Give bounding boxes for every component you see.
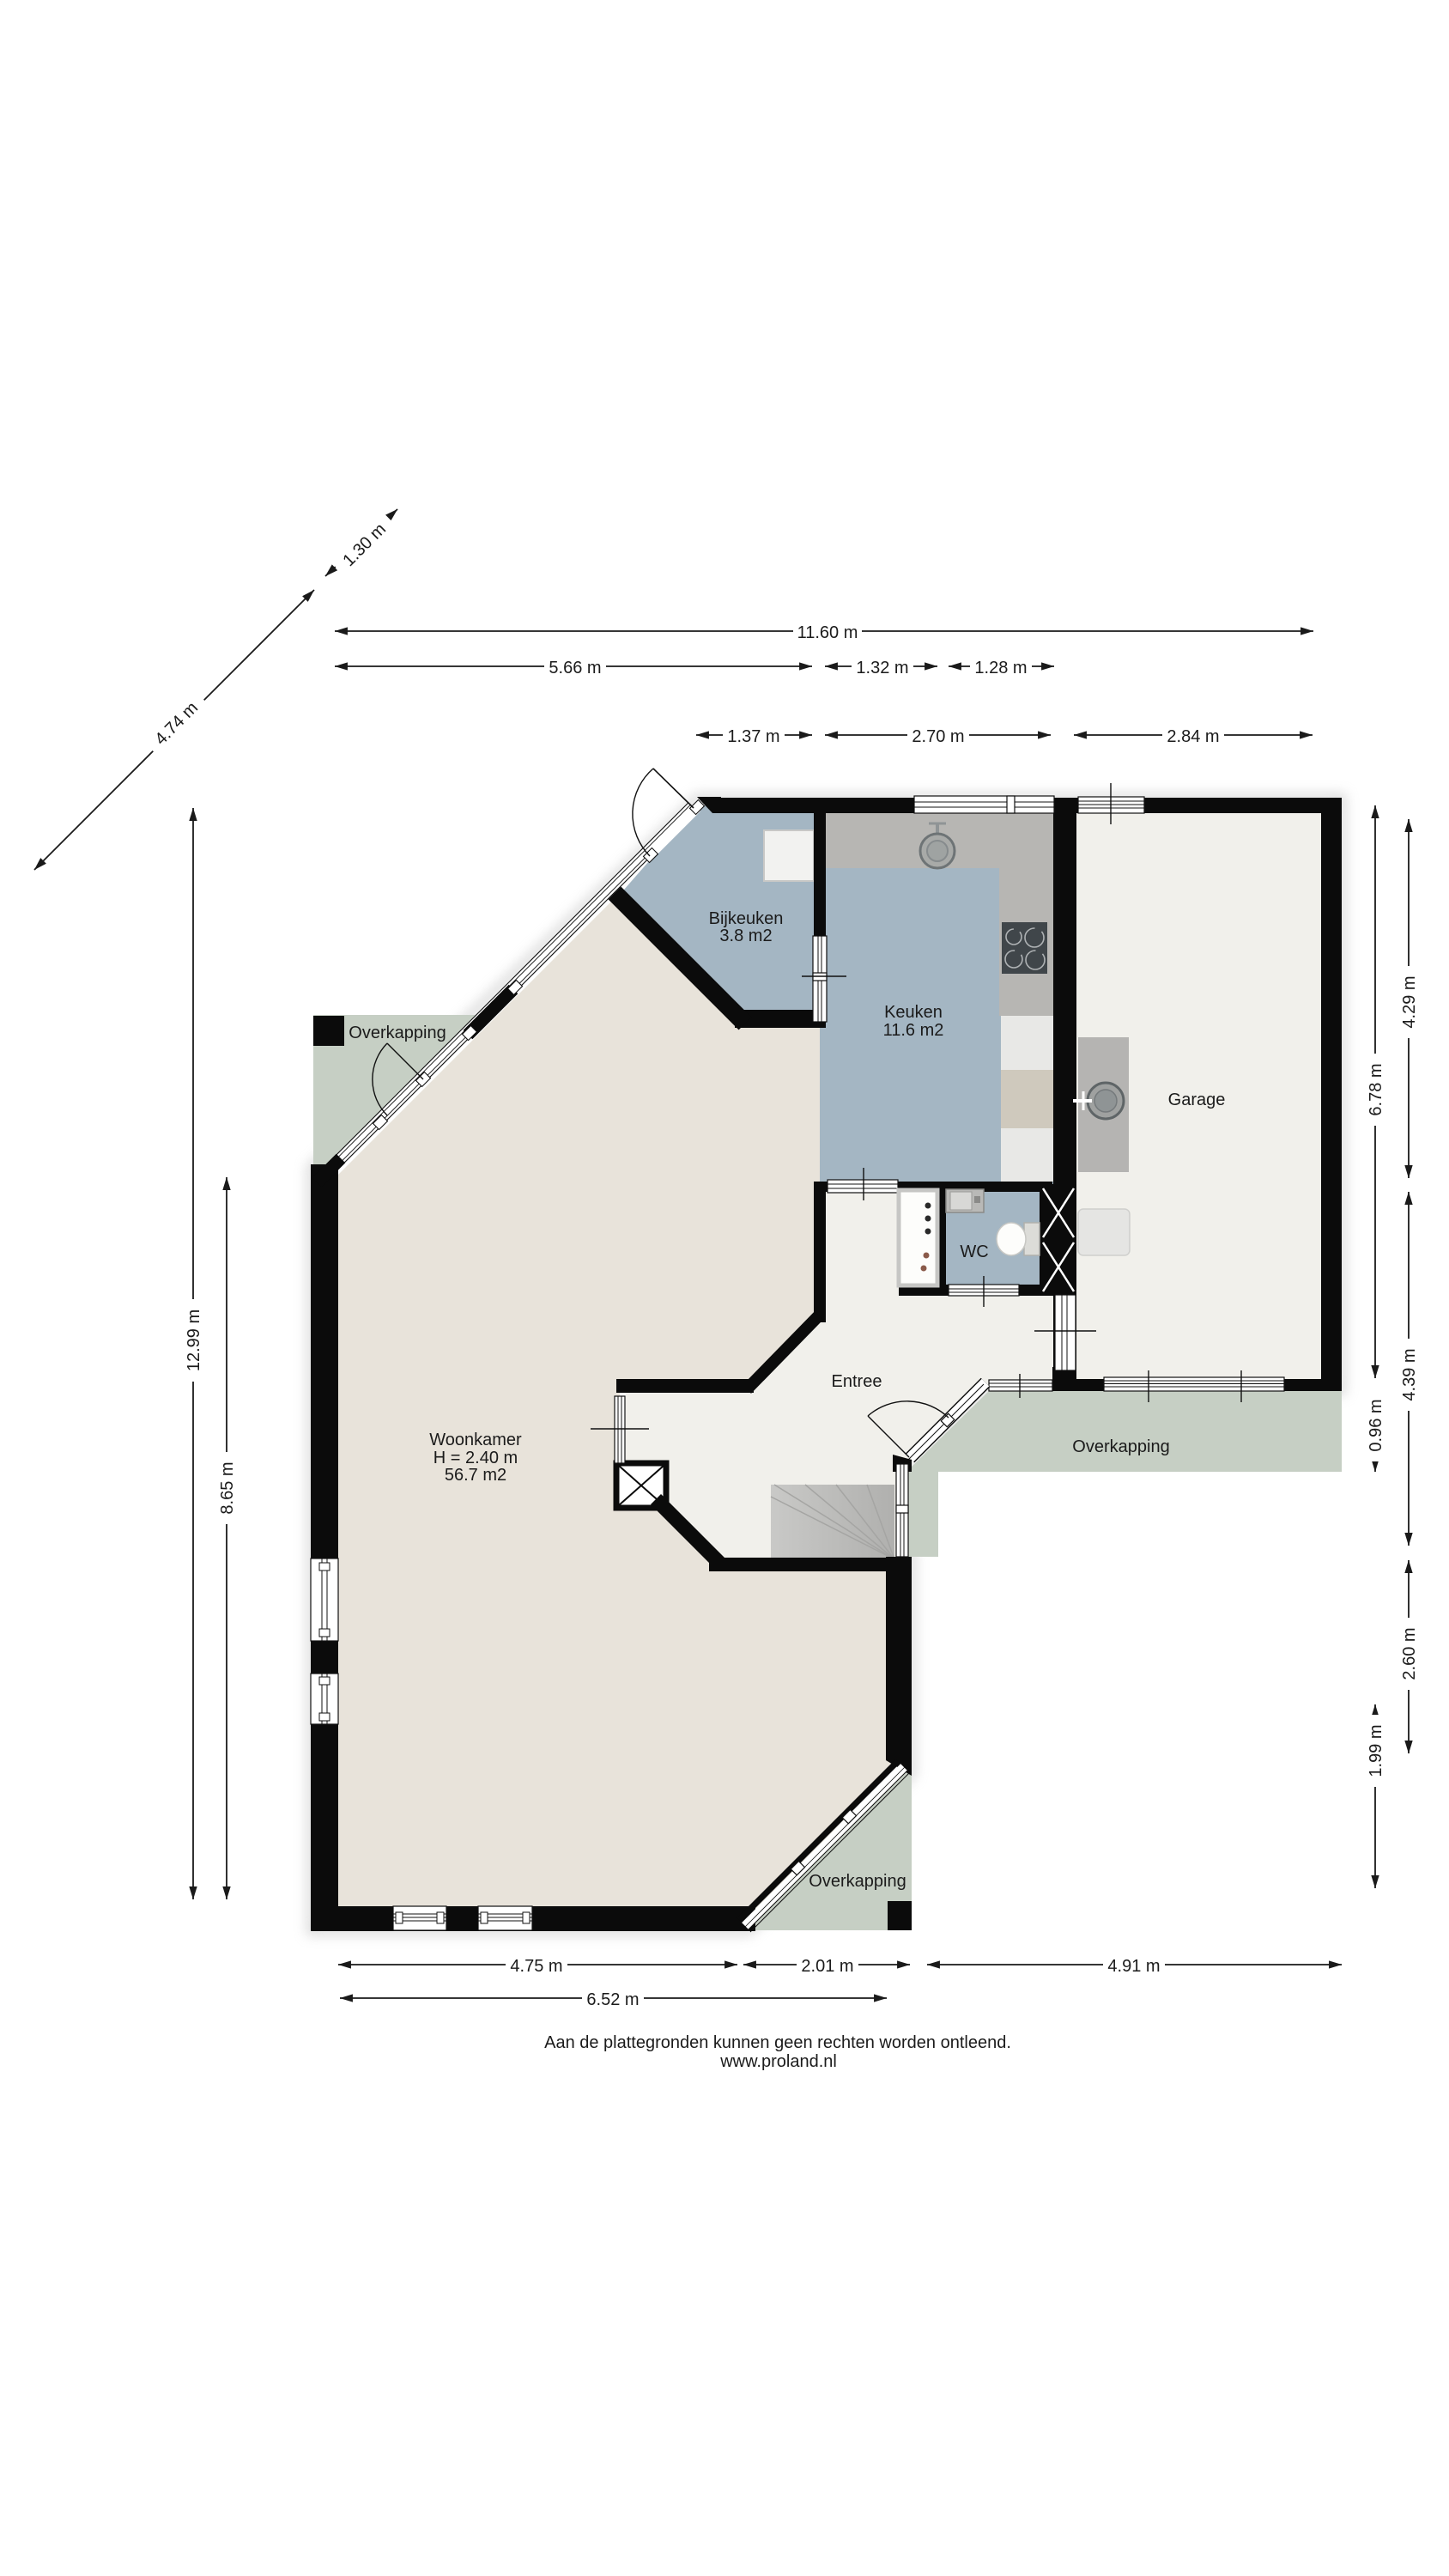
svg-text:1.32 m: 1.32 m <box>856 659 908 677</box>
svg-text:1.30 m: 1.30 m <box>339 519 390 570</box>
svg-text:Woonkamer: Woonkamer <box>429 1431 522 1449</box>
svg-text:Bijkeuken: Bijkeuken <box>709 909 784 928</box>
svg-text:2.01 m: 2.01 m <box>801 1957 853 1976</box>
svg-text:6.52 m: 6.52 m <box>586 1990 639 2009</box>
svg-text:4.39 m: 4.39 m <box>1400 1348 1419 1400</box>
svg-text:www.proland.nl: www.proland.nl <box>719 2052 837 2071</box>
svg-text:1.37 m: 1.37 m <box>727 727 779 746</box>
svg-text:12.99 m: 12.99 m <box>185 1309 203 1371</box>
svg-text:11.6 m2: 11.6 m2 <box>883 1021 944 1040</box>
svg-text:0.96 m: 0.96 m <box>1367 1399 1385 1451</box>
svg-text:4.75 m: 4.75 m <box>510 1957 562 1976</box>
svg-text:8.65 m: 8.65 m <box>218 1461 237 1514</box>
svg-text:1.28 m: 1.28 m <box>974 659 1027 677</box>
svg-text:WC: WC <box>960 1242 988 1261</box>
svg-text:Overkapping: Overkapping <box>349 1024 446 1042</box>
svg-text:11.60 m: 11.60 m <box>797 623 858 642</box>
svg-text:6.78 m: 6.78 m <box>1367 1063 1385 1115</box>
svg-text:Garage: Garage <box>1168 1091 1226 1109</box>
svg-text:5.66 m: 5.66 m <box>549 659 601 677</box>
svg-text:2.70 m: 2.70 m <box>912 727 964 746</box>
svg-text:2.84 m: 2.84 m <box>1167 727 1219 746</box>
svg-text:56.7 m2: 56.7 m2 <box>445 1466 506 1485</box>
svg-text:Overkapping: Overkapping <box>1072 1437 1169 1456</box>
svg-text:4.91 m: 4.91 m <box>1107 1957 1160 1976</box>
svg-text:4.74 m: 4.74 m <box>151 698 202 749</box>
svg-text:3.8 m2: 3.8 m2 <box>719 927 772 945</box>
svg-text:Overkapping: Overkapping <box>809 1872 906 1891</box>
svg-text:Aan de plattegronden kunnen ge: Aan de plattegronden kunnen geen rechten… <box>544 2033 1011 2052</box>
svg-text:Entree: Entree <box>832 1372 882 1391</box>
svg-text:2.60 m: 2.60 m <box>1400 1627 1419 1680</box>
svg-text:H = 2.40 m: H = 2.40 m <box>433 1449 518 1467</box>
svg-text:1.99 m: 1.99 m <box>1367 1724 1385 1777</box>
svg-text:Keuken: Keuken <box>884 1003 943 1022</box>
svg-text:4.29 m: 4.29 m <box>1400 975 1419 1028</box>
